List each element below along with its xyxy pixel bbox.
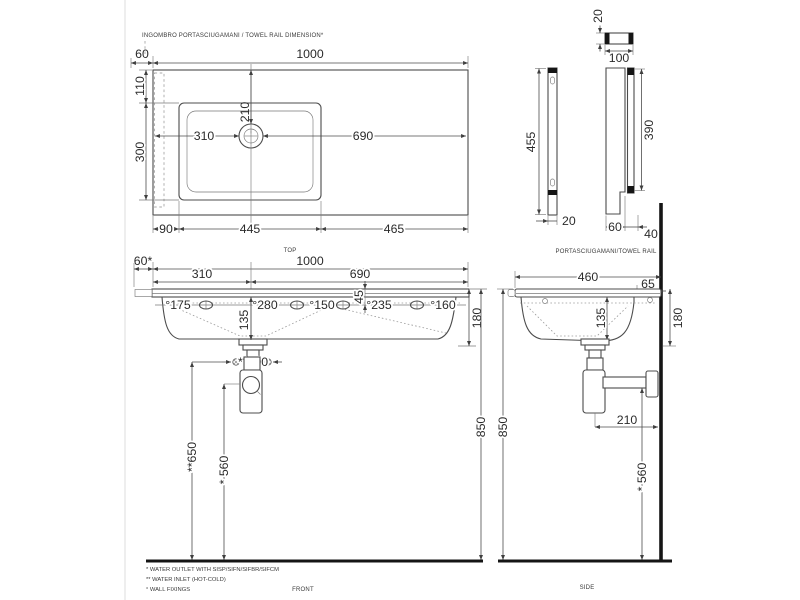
siphon-outlet <box>243 377 260 394</box>
wall-outlet-flange <box>646 371 658 397</box>
side-view-label: SIDE <box>580 585 595 591</box>
dim-front-total: 1000 <box>296 254 324 268</box>
dim-bowl-depth: 300 <box>133 142 147 163</box>
dim-fix-280: °280 <box>252 298 278 312</box>
dim-drain-right: 690 <box>353 129 374 143</box>
dim-side-drain-drop: 135 <box>594 308 608 329</box>
front-countertop <box>152 289 469 297</box>
front-view: 60* 1000 310 690 °175 °280 °150 °235 °16… <box>134 254 488 561</box>
dim-rail-width: 60 <box>135 47 149 61</box>
top-view: INGOMBRO PORTASCIUGAMANI / TOWEL RAIL DI… <box>131 33 468 254</box>
side-view: 460 65 135 180 210 * 560 <box>496 203 685 561</box>
towel-rail-view: 20 100 455 20 390 60 40 <box>524 9 658 255</box>
dim-side-depth: 460 <box>578 270 599 284</box>
dim-bracket-depth: 40 <box>644 227 658 241</box>
dim-side-outlet-height: * 560 <box>635 462 649 491</box>
dim-fix-235: °235 <box>366 298 392 312</box>
dim-drain-left: 310 <box>194 129 215 143</box>
dim-front-total-height: 850 <box>474 417 488 438</box>
footnote-water-inlet: ** WATER INLET (HOT-COLD) <box>146 577 226 583</box>
footnote-water-outlet: * WATER OUTLET WITH SISP/SIFN/SIFBR/SIFC… <box>146 567 279 573</box>
dim-drain-from-back: 210 <box>238 102 252 123</box>
towel-rail-label: PORTASCIUGAMANI/TOWEL RAIL <box>556 249 657 255</box>
dim-fix-160: °160 <box>430 298 456 312</box>
side-drain-fitting <box>581 339 609 345</box>
drain-fitting <box>239 339 267 345</box>
side-fixing-hole <box>543 299 548 304</box>
side-basin-body <box>521 297 634 341</box>
side-outlet-pipe <box>603 377 646 388</box>
rail-side-bar <box>628 68 635 193</box>
dim-bottom-right: 465 <box>384 222 405 236</box>
dim-bar-width: 100 <box>609 51 630 65</box>
dim-fix-175: °175 <box>165 298 191 312</box>
dim-front-edge-height: 180 <box>470 308 484 329</box>
dim-bottom-left: 90 <box>159 222 173 236</box>
dim-back-margin: 110 <box>133 76 147 96</box>
dim-bottom-bowl: 445 <box>240 222 261 236</box>
footnote-wall-fixings: ° WALL FIXINGS <box>146 587 190 593</box>
dim-fix-drop: 45 <box>352 290 366 304</box>
dim-side-total-height: 850 <box>496 417 510 438</box>
rail-side-bracket <box>606 68 625 214</box>
dim-inlet-height: **650 <box>185 442 199 472</box>
dim-rail-height: 455 <box>524 132 538 153</box>
dim-outlet-height: * 560 <box>217 455 231 484</box>
dim-fix-150: °150 <box>309 298 335 312</box>
technical-drawing: INGOMBRO PORTASCIUGAMANI / TOWEL RAIL DI… <box>0 0 800 600</box>
front-view-label: FRONT <box>292 587 314 593</box>
dim-total-width: 1000 <box>296 47 324 61</box>
dim-bracket-width: 60 <box>608 220 622 234</box>
dim-bar-thickness: 20 <box>591 9 605 23</box>
side-fixing-hole <box>648 298 653 303</box>
side-siphon-neck <box>587 358 603 370</box>
dim-bracket-height: 390 <box>642 120 656 141</box>
top-view-label: TOP <box>284 248 297 254</box>
dim-front-drain-right: 690 <box>350 267 371 281</box>
dim-rail-thickness: 20 <box>562 214 576 228</box>
siphon-neck <box>244 357 260 370</box>
dim-front-drain-left: 310 <box>192 267 213 281</box>
drawing-page: INGOMBRO PORTASCIUGAMANI / TOWEL RAIL DI… <box>0 0 800 600</box>
side-siphon-bottle <box>583 370 605 413</box>
front-rail-stub <box>135 290 152 297</box>
dim-front-drain-drop: 135 <box>237 310 251 331</box>
dim-side-edge-height: 180 <box>671 308 685 329</box>
side-rail-section <box>508 290 515 297</box>
side-countertop <box>515 289 661 297</box>
towel-rail-dimension-note: INGOMBRO PORTASCIUGAMANI / TOWEL RAIL DI… <box>142 33 324 39</box>
towel-rail-zone-dashed <box>155 73 165 207</box>
footnotes: * WATER OUTLET WITH SISP/SIFN/SIFBR/SIFC… <box>146 567 594 593</box>
dim-front-rail: 60* <box>134 254 153 268</box>
dim-outlet-offset: 210 <box>617 413 638 427</box>
